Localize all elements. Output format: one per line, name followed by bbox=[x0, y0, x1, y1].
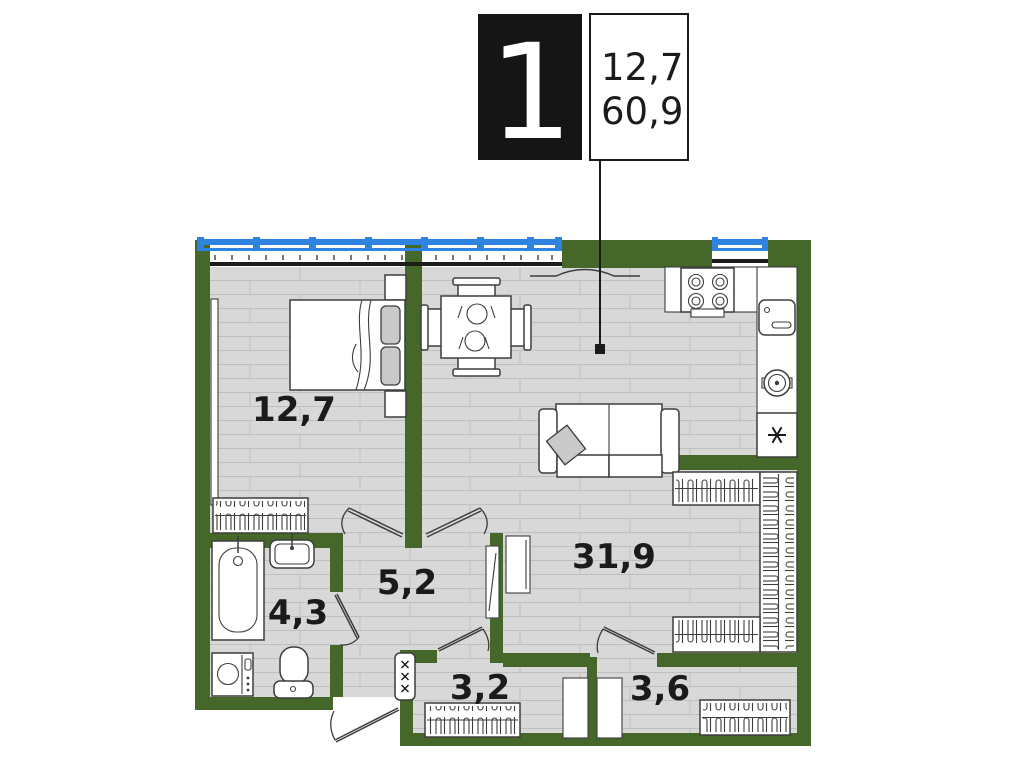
stove-icon bbox=[681, 268, 734, 317]
wardrobe-strip-icon bbox=[211, 299, 218, 505]
living-area-label: 31,9 bbox=[572, 537, 656, 577]
fridge-icon bbox=[757, 413, 797, 457]
wall-bedroom-living bbox=[405, 240, 422, 548]
railing-bar-bottom bbox=[197, 248, 562, 251]
wall-living-bottom-b bbox=[657, 653, 797, 667]
wall-storage-left-pier bbox=[413, 650, 437, 663]
closet-hangers-top-icon bbox=[673, 472, 760, 505]
entry-threshold bbox=[333, 697, 400, 710]
wall-bathroom-right-upper bbox=[330, 533, 343, 592]
window-sill-kitchen bbox=[712, 259, 768, 263]
storage-right-cabinet-icon bbox=[597, 678, 622, 738]
storage-right-hangers-icon bbox=[700, 700, 790, 735]
storage-left-cabinet-icon bbox=[563, 678, 588, 738]
washing-machine-icon bbox=[212, 653, 253, 696]
shaft-box-icon bbox=[395, 653, 415, 700]
wall-top-right-a bbox=[562, 240, 712, 268]
nightstand-icon bbox=[385, 275, 406, 300]
wall-left bbox=[195, 240, 210, 710]
mirror-icon bbox=[486, 546, 499, 618]
bathroom-area-label: 4,3 bbox=[268, 593, 328, 633]
plate-icon bbox=[467, 304, 487, 324]
storage-right-area-label: 3,6 bbox=[630, 669, 690, 709]
sofa-icon bbox=[539, 404, 679, 477]
entry-door-swing bbox=[331, 697, 400, 742]
storage-left-area-label: 3,2 bbox=[450, 668, 510, 708]
closet-hangers-right-icon bbox=[760, 472, 797, 652]
leader-endpoint bbox=[595, 344, 605, 354]
closet-hangers-bottom-icon bbox=[673, 617, 760, 652]
kitchen-window bbox=[712, 237, 768, 263]
plate-icon bbox=[465, 331, 485, 351]
wall-bathroom-bottom bbox=[195, 697, 333, 710]
hallway-area-label: 5,2 bbox=[377, 563, 437, 603]
total-area-value: 60,9 bbox=[601, 90, 683, 133]
window-sill-main bbox=[210, 262, 562, 266]
bedroom-wardrobe-hangers-icon bbox=[213, 498, 308, 533]
nightstand-icon bbox=[385, 391, 406, 417]
bedroom-area-label: 12,7 bbox=[252, 390, 336, 430]
storage-left-hangers-icon bbox=[425, 703, 520, 737]
railing-bar-top bbox=[197, 239, 562, 245]
window-tick-marks bbox=[215, 255, 552, 260]
bed-icon bbox=[290, 300, 405, 390]
wall-living-bottom-a bbox=[503, 653, 590, 667]
kitchen-sink-icon bbox=[759, 300, 795, 335]
wall-right bbox=[797, 240, 811, 746]
room-area-value: 12,7 bbox=[601, 46, 683, 89]
wall-top-right-b bbox=[768, 240, 797, 268]
floor-plan-canvas: 12,7 31,9 5,2 4,3 3,2 3,6 1 12,7 60,9 bbox=[0, 0, 1013, 768]
floor-plan-page: 12,7 31,9 5,2 4,3 3,2 3,6 1 12,7 60,9 bbox=[0, 0, 1013, 768]
plan-number: 1 bbox=[489, 16, 573, 170]
bathtub-icon bbox=[212, 536, 264, 640]
